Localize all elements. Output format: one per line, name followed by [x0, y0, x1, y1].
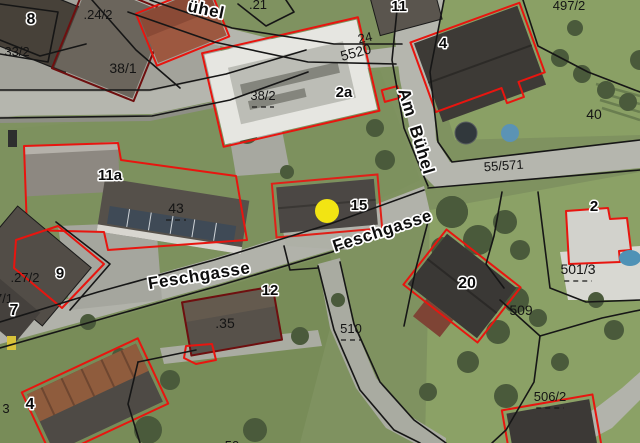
svg-text:.21: .21: [249, 0, 267, 12]
parcel-number-label: 24: [356, 29, 373, 47]
svg-text:15: 15: [351, 197, 368, 214]
house-number-label: 20: [458, 275, 476, 292]
svg-text:7: 7: [10, 302, 19, 319]
car-dark: [8, 130, 17, 147]
svg-text:38/2: 38/2: [250, 88, 275, 103]
svg-text:506/2: 506/2: [534, 389, 567, 404]
house-number-label: 2: [590, 198, 598, 215]
parcel-number-label: .27/2: [11, 270, 40, 285]
svg-text:38/1: 38/1: [109, 60, 136, 76]
pool-round-blue: [501, 124, 519, 142]
svg-text:11a: 11a: [98, 167, 123, 184]
house-number-label: 11: [391, 0, 407, 15]
svg-text:40: 40: [586, 106, 602, 122]
svg-text:20: 20: [458, 275, 476, 292]
parcel-number-label: 55/571: [483, 157, 524, 175]
parcel-number-label: .21: [249, 0, 267, 12]
house-number-label: 15: [351, 197, 368, 214]
svg-text:55/571: 55/571: [483, 157, 524, 175]
parcel-number-label: 40: [586, 106, 602, 122]
house-number-label: 2a: [336, 84, 353, 101]
map-canvas[interactable]: .24/233/238/138/2552024.21497/2404355/57…: [0, 0, 640, 443]
svg-text:509: 509: [509, 302, 533, 318]
svg-text:.24/2: .24/2: [84, 7, 113, 22]
parcel-number-label: .35: [215, 315, 235, 331]
svg-text:50: 50: [225, 438, 239, 443]
svg-text:24: 24: [356, 29, 373, 47]
parcel-number-label: 509: [509, 302, 533, 318]
svg-text:8: 8: [27, 11, 36, 28]
parcel-number-label: 38/1: [109, 60, 136, 76]
house-number-label: 7: [10, 302, 19, 319]
parcel-number-label: 50: [225, 438, 239, 443]
svg-text:4: 4: [439, 35, 448, 52]
house-number-label: 4: [26, 396, 35, 413]
parcel-number-label: 497/2: [553, 0, 586, 13]
svg-text:43: 43: [168, 200, 184, 216]
svg-text:497/2: 497/2: [553, 0, 586, 13]
house-number-label: 8: [27, 11, 36, 28]
map-frame: .24/233/238/138/2552024.21497/2404355/57…: [0, 0, 640, 443]
parcel-number-label: .24/2: [84, 7, 113, 22]
svg-text:33/2: 33/2: [4, 44, 29, 59]
house-number-label: 12: [262, 282, 279, 299]
svg-text:.27/2: .27/2: [11, 270, 40, 285]
svg-text:.35: .35: [215, 315, 235, 331]
house-number-label: 11a: [98, 167, 123, 184]
svg-text:9: 9: [56, 265, 64, 282]
pool-2: [619, 250, 640, 266]
svg-text:2: 2: [590, 198, 598, 215]
parcel-number-label: 3: [2, 401, 9, 416]
selected-location-marker[interactable]: [315, 199, 339, 223]
svg-text:2a: 2a: [336, 84, 353, 101]
parcel-number-label: 33/2: [4, 44, 29, 59]
svg-text:3: 3: [2, 401, 9, 416]
svg-text:4: 4: [26, 396, 35, 413]
house-number-label: 9: [56, 265, 64, 282]
house-number-label: 4: [439, 35, 448, 52]
svg-text:510: 510: [340, 321, 362, 336]
pool-round-dark: [455, 122, 477, 144]
svg-text:12: 12: [262, 282, 279, 299]
svg-text:11: 11: [391, 0, 407, 15]
svg-text:501/3: 501/3: [560, 261, 595, 277]
